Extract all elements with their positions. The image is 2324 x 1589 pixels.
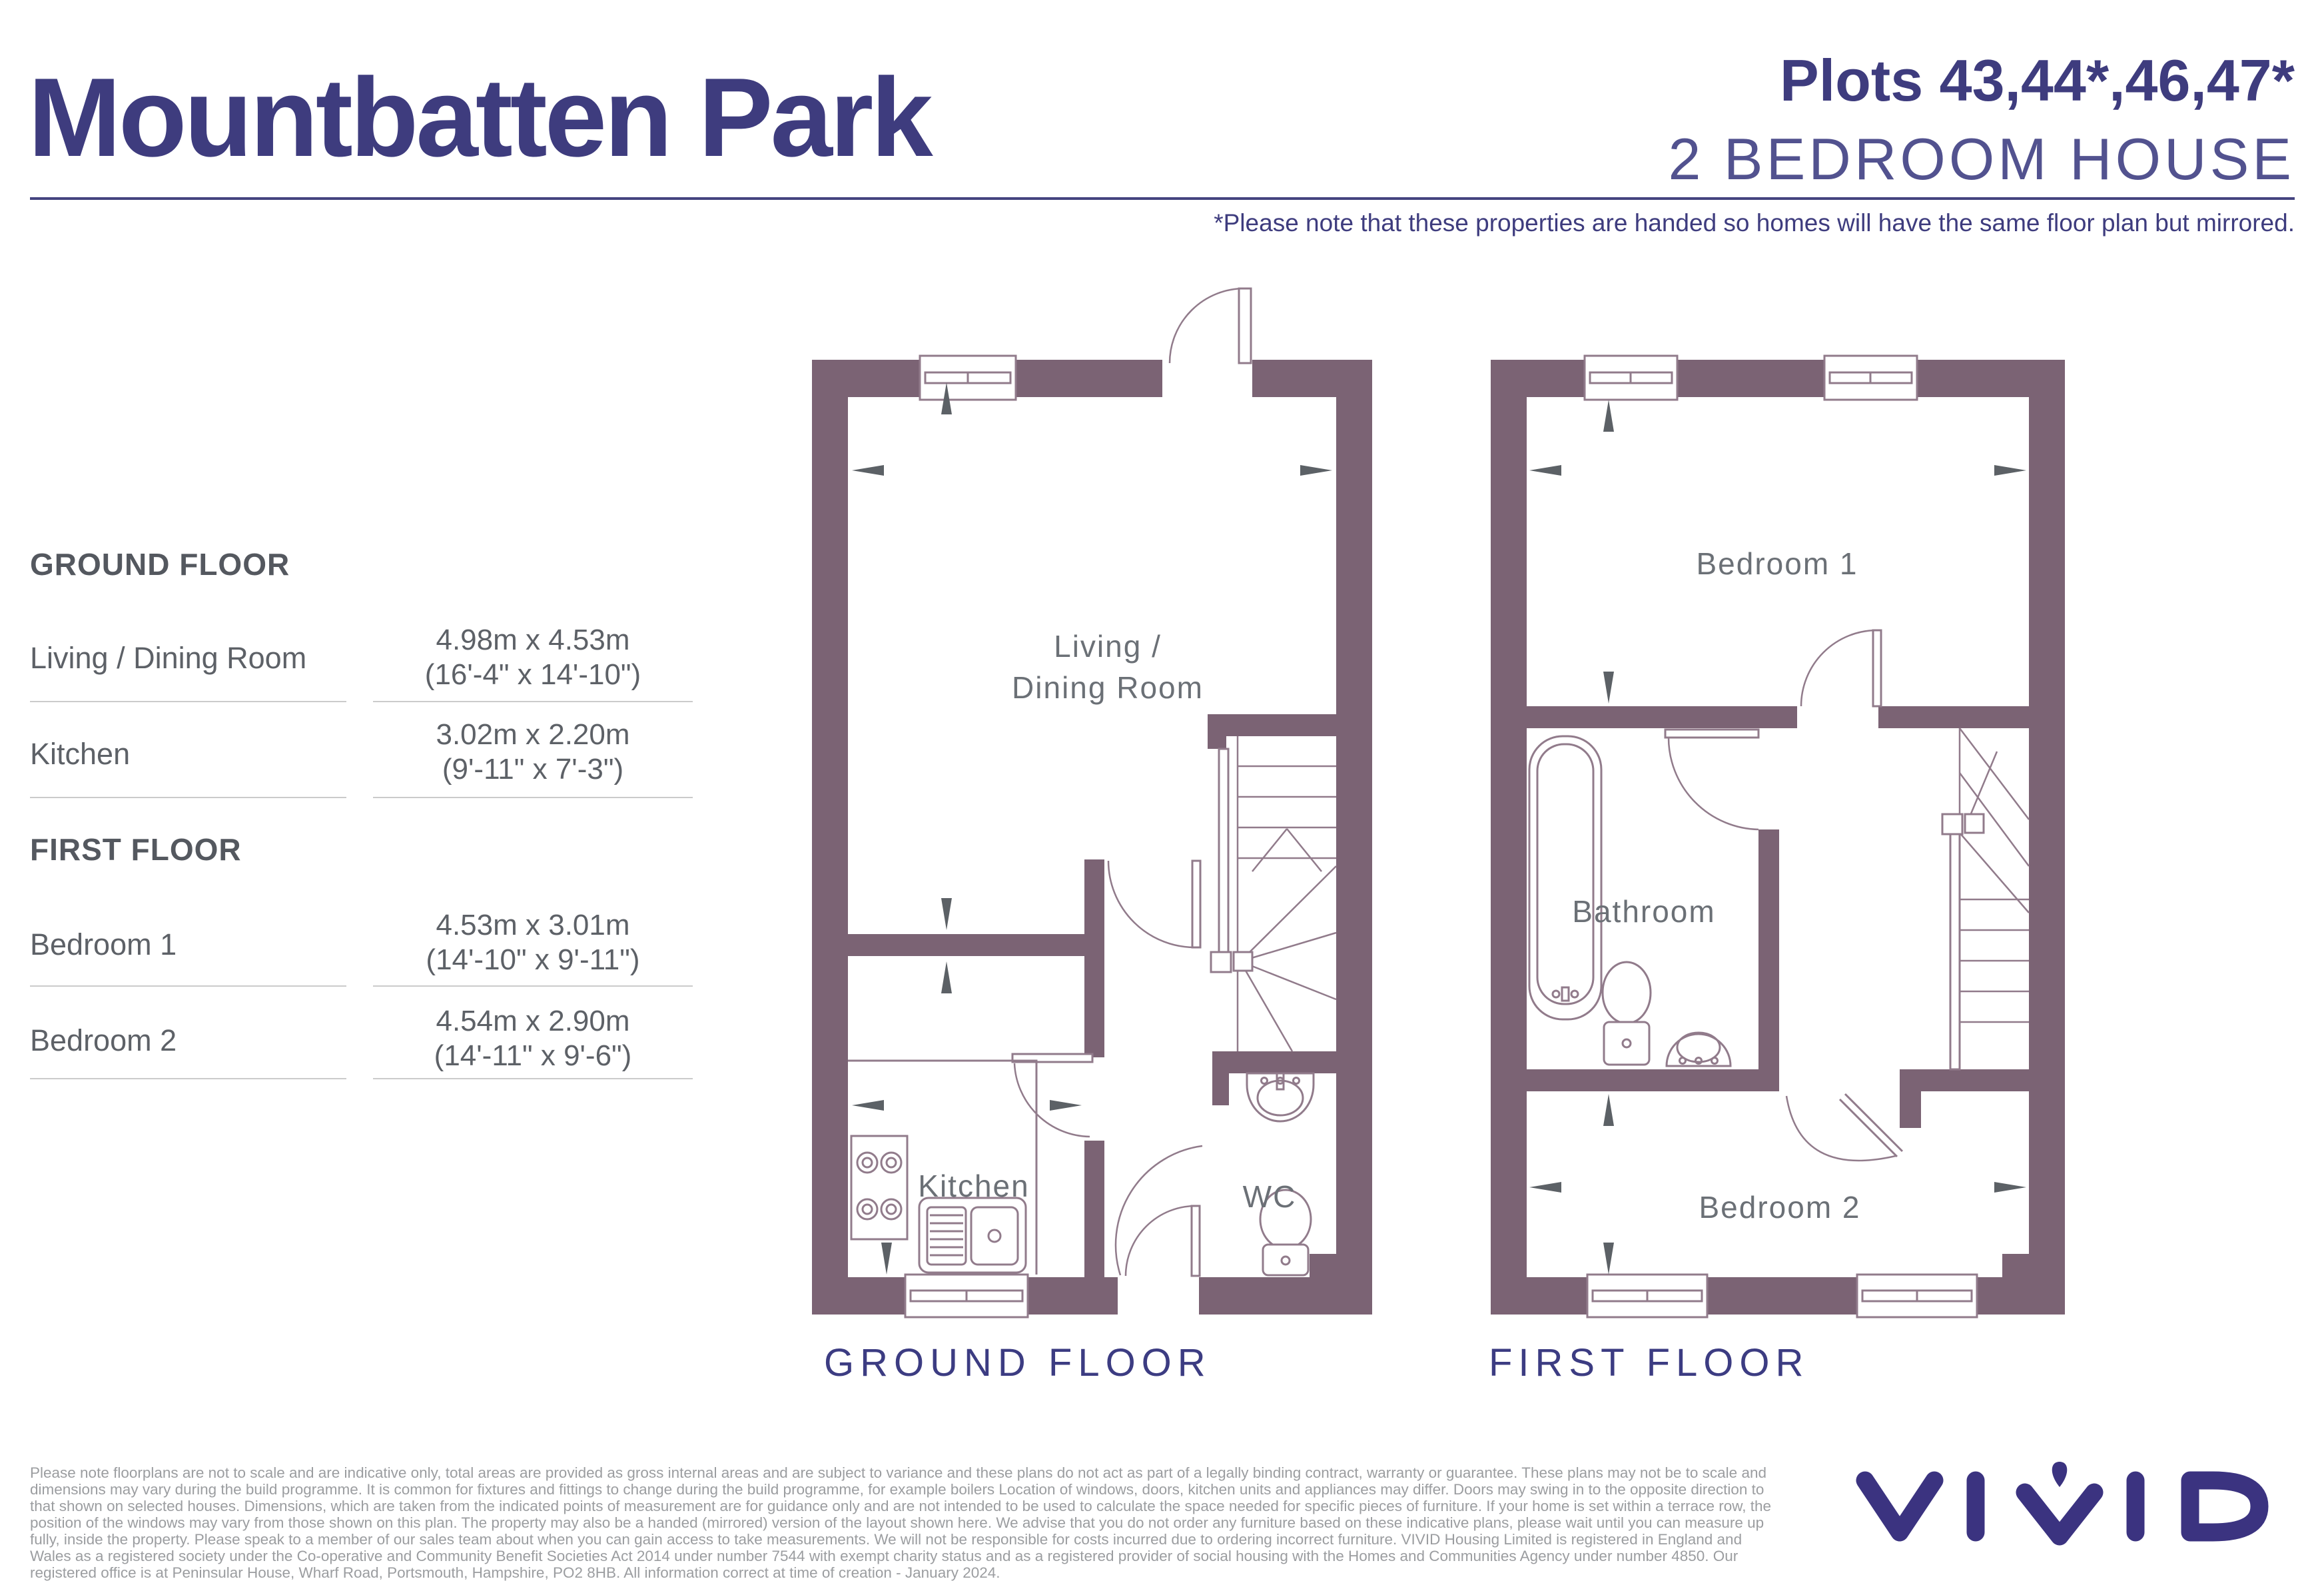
first-floor-plan: Bedroom 1 Bathroom Bedroom 2	[1491, 356, 2065, 1317]
room-label-wc: WC	[1243, 1179, 1297, 1214]
table-row-kitchen-label: Kitchen	[30, 737, 130, 772]
window-bedroom2-left	[1587, 1275, 1707, 1317]
table-separator	[373, 701, 693, 702]
window-bedroom1-left	[1585, 356, 1677, 400]
ground-floor-caption: GROUND FLOOR	[824, 1340, 1212, 1385]
bedroom1-door	[1801, 630, 1881, 706]
back-door	[1126, 1206, 1200, 1276]
table-row-kitchen-imperial: (9'-11" x 7'-3")	[373, 753, 693, 786]
floorplan-drawing: Living / Dining Room Kitchen WC	[766, 266, 2105, 1406]
table-row-bedroom1-metric: 4.53m x 3.01m	[373, 909, 693, 942]
room-label-living-line1: Living /	[1054, 629, 1162, 664]
floorplan-sheet: { "header": { "title": "Mountbatten Park…	[0, 0, 2324, 1589]
table-row-bedroom2-imperial: (14'-11" x 9'-6")	[373, 1039, 693, 1073]
table-separator	[373, 1078, 693, 1079]
legal-disclaimer: Please note floorplans are not to scale …	[30, 1464, 1785, 1581]
table-row-bedroom2-label: Bedroom 2	[30, 1023, 177, 1058]
table-section-ground-floor: GROUND FLOOR	[30, 546, 290, 582]
logo-letter-v2	[2025, 1492, 2094, 1536]
wc-basin	[1247, 1073, 1314, 1121]
window-bedroom1-right	[1824, 356, 1917, 400]
table-separator	[373, 985, 693, 987]
bathtub	[1529, 736, 1601, 1019]
header-divider	[30, 197, 2295, 200]
logo-droplet-icon	[2052, 1462, 2068, 1487]
room-label-bedroom1: Bedroom 1	[1696, 546, 1858, 581]
logo-letter-v1	[1865, 1480, 1934, 1532]
staircase-first	[1942, 728, 2029, 1069]
table-separator	[30, 985, 346, 987]
table-row-living-imperial: (16'-4" x 14'-10")	[373, 658, 693, 692]
bathroom-door	[1665, 730, 1758, 829]
first-floor-caption: FIRST FLOOR	[1489, 1340, 1809, 1385]
table-row-living-label: Living / Dining Room	[30, 641, 306, 676]
table-row-bedroom1-imperial: (14'-10" x 9'-11")	[373, 943, 693, 977]
measurement-arrows-bedroom2	[1529, 1094, 2026, 1275]
plots-heading: Plots 43,44*,46,47*	[1780, 47, 2295, 115]
table-separator	[373, 797, 693, 798]
ground-floor-plan: Living / Dining Room Kitchen WC	[812, 288, 1372, 1317]
page-title: Mountbatten Park	[28, 53, 931, 182]
table-row-bedroom2-metric: 4.54m x 2.90m	[373, 1005, 693, 1038]
hob	[851, 1136, 907, 1239]
hall-door	[1108, 861, 1200, 947]
table-row-living-metric: 4.98m x 4.53m	[373, 624, 693, 657]
table-separator	[30, 797, 346, 798]
window-kitchen-bottom	[905, 1275, 1028, 1317]
house-type-subtitle: 2 BEDROOM HOUSE	[1669, 125, 2295, 193]
room-label-bathroom: Bathroom	[1572, 894, 1715, 929]
room-label-kitchen: Kitchen	[918, 1169, 1029, 1203]
room-label-bedroom2: Bedroom 2	[1699, 1190, 1860, 1225]
table-separator	[30, 1078, 346, 1079]
table-row-bedroom1-label: Bedroom 1	[30, 927, 177, 962]
kitchen-door	[1012, 1054, 1092, 1137]
window-living-top	[920, 356, 1016, 400]
room-label-living-line2: Dining Room	[1012, 670, 1204, 705]
kitchen-sink	[919, 1198, 1026, 1273]
vivid-logo	[1852, 1452, 2318, 1589]
table-section-first-floor: FIRST FLOOR	[30, 831, 242, 867]
logo-letter-d	[2190, 1480, 2259, 1532]
table-row-kitchen-metric: 3.02m x 2.20m	[373, 718, 693, 752]
table-separator	[30, 701, 346, 702]
staircase-ground	[1211, 736, 1336, 1051]
mirrored-note: *Please note that these properties are h…	[1214, 209, 2295, 237]
bedroom2-door	[1786, 1094, 1902, 1161]
window-bedroom2-right	[1857, 1275, 1977, 1317]
front-door	[1170, 288, 1251, 363]
bathroom-basin	[1667, 1033, 1731, 1066]
bathroom-toilet	[1603, 962, 1651, 1065]
